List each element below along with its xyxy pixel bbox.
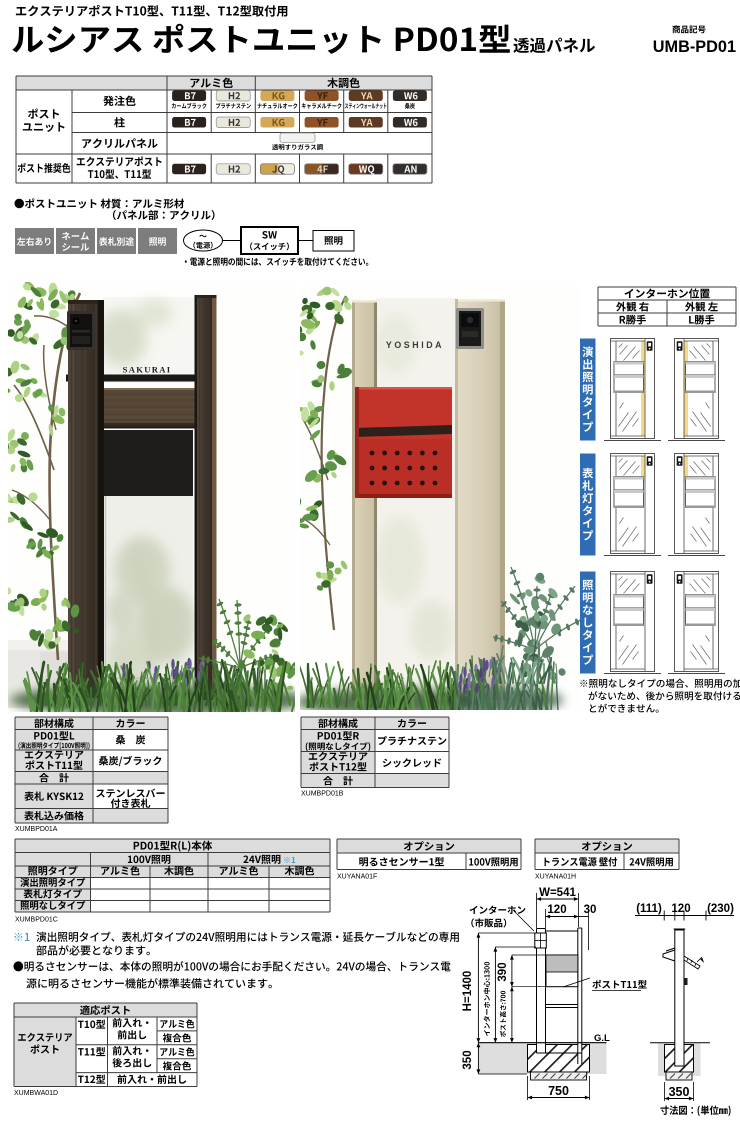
- svg-text:350: 350: [462, 1050, 474, 1069]
- svg-text:120: 120: [671, 903, 690, 915]
- svg-text:120: 120: [547, 904, 566, 916]
- svg-text:XUYANA01H: XUYANA01H: [535, 874, 576, 881]
- svg-text:XUMBPD01C: XUMBPD01C: [15, 917, 58, 924]
- svg-text:(111): (111): [636, 903, 662, 915]
- svg-text:SAKURAI: SAKURAI: [123, 365, 172, 375]
- svg-text:XUMBPD01A: XUMBPD01A: [15, 826, 58, 833]
- svg-text:W=541: W=541: [539, 887, 576, 899]
- svg-text:XUMBWA01D: XUMBWA01D: [14, 1090, 58, 1097]
- svg-text:XUYANA01F: XUYANA01F: [337, 874, 377, 881]
- svg-text:30: 30: [584, 904, 597, 916]
- svg-text:390: 390: [497, 962, 509, 981]
- svg-text:(230): (230): [707, 903, 734, 915]
- svg-text:XUMBPD01B: XUMBPD01B: [301, 791, 344, 798]
- svg-text:350: 350: [669, 1085, 690, 1099]
- svg-text:H=1400: H=1400: [462, 971, 474, 1012]
- svg-text:UMB-PD01: UMB-PD01: [653, 38, 736, 56]
- svg-text:750: 750: [548, 1084, 569, 1098]
- svg-text:YOSHIDA: YOSHIDA: [386, 340, 444, 350]
- svg-text:G.L: G.L: [594, 1033, 610, 1044]
